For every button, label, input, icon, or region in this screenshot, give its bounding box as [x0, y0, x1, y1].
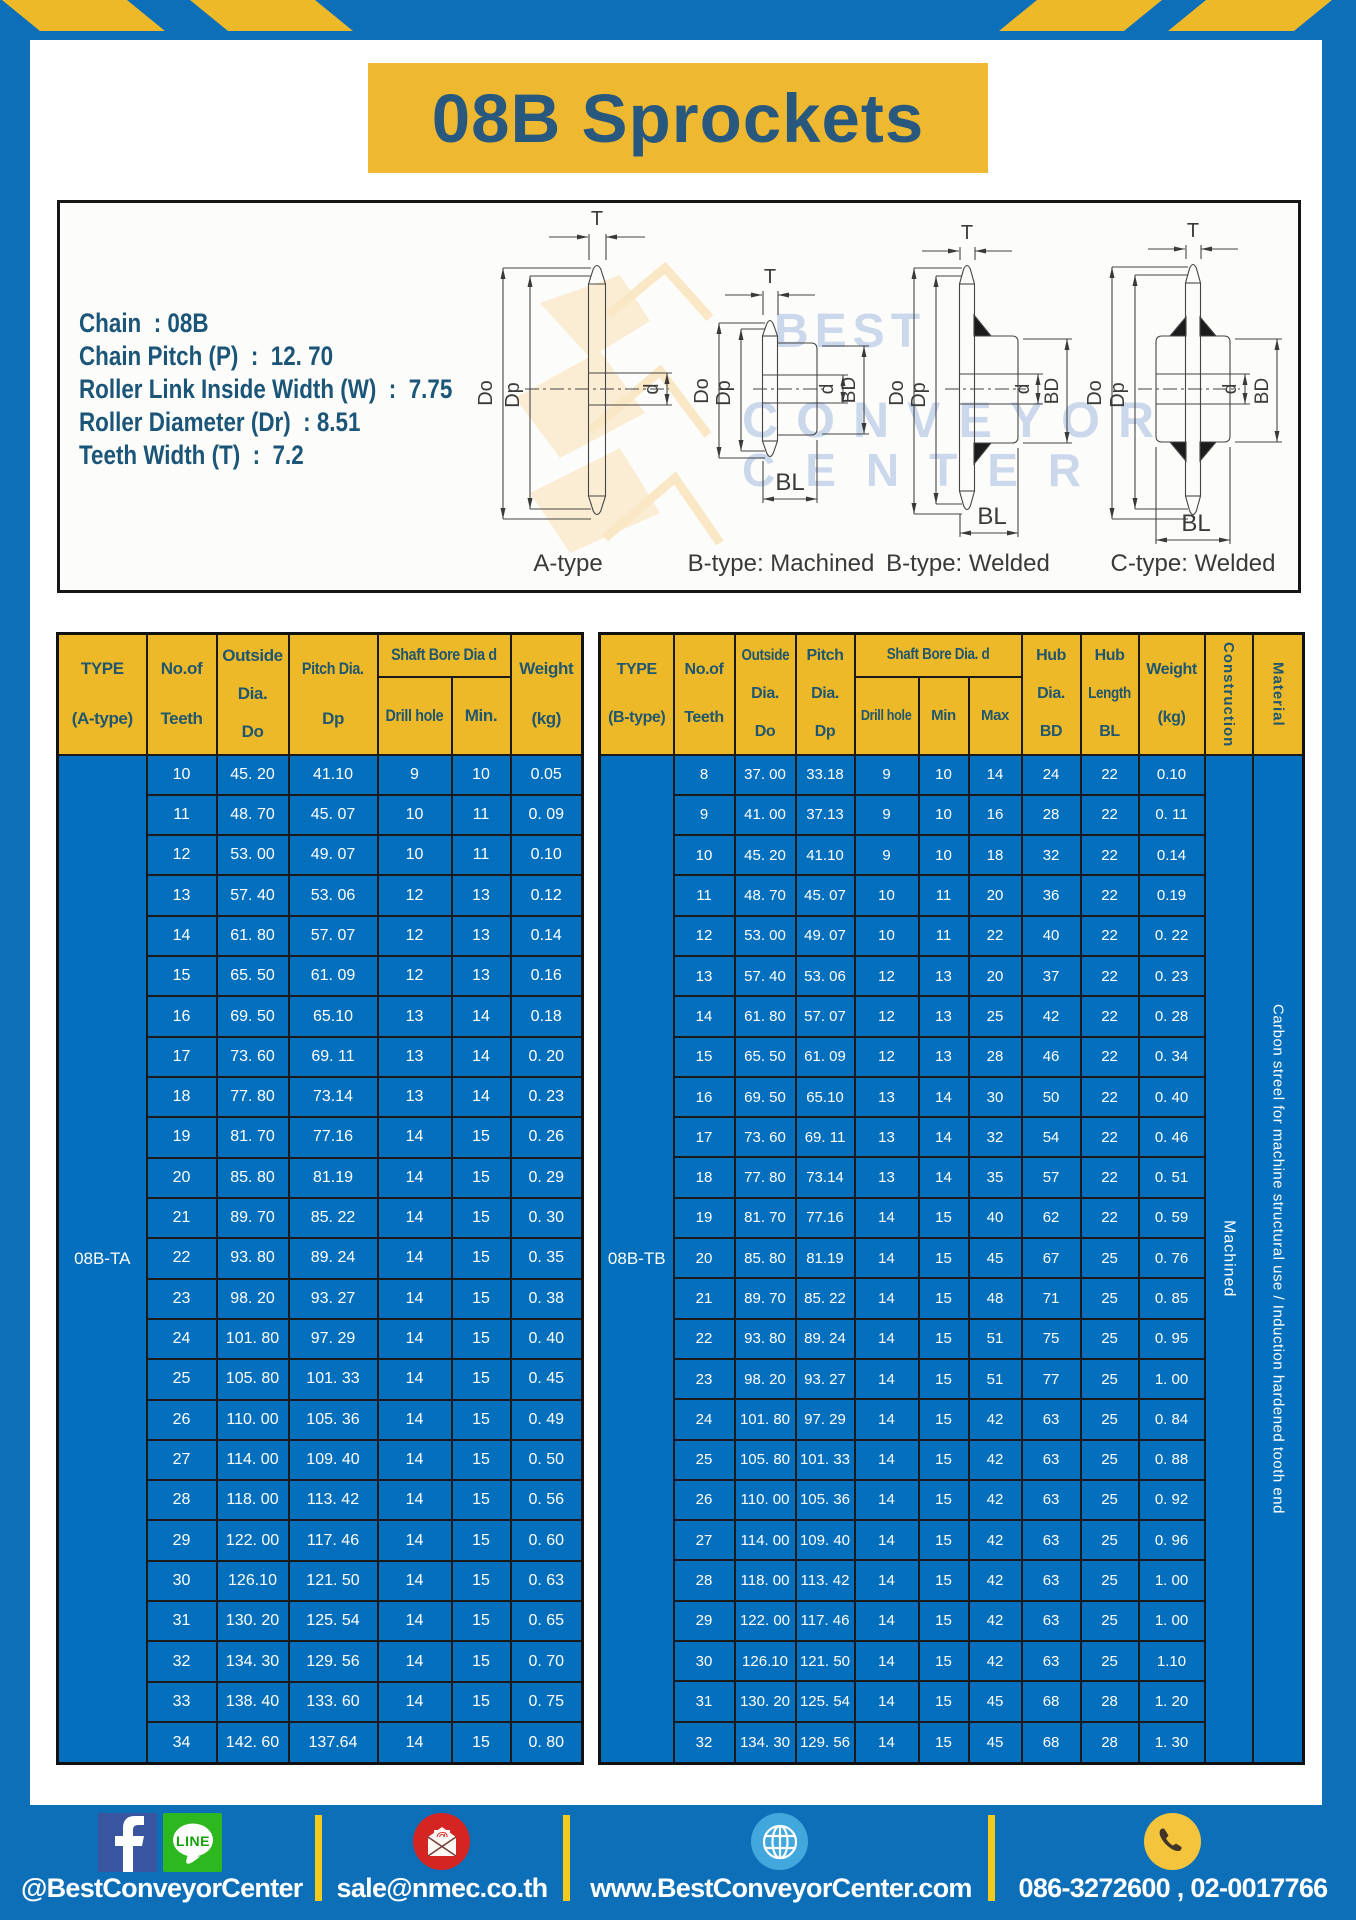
svg-text:T: T — [1187, 220, 1199, 242]
svg-text:Dp: Dp — [502, 382, 524, 408]
svg-text:T: T — [961, 222, 973, 244]
svg-text:B-type: Machined: B-type: Machined — [688, 550, 875, 577]
svg-text:Dp: Dp — [1107, 382, 1129, 408]
svg-text:BD: BD — [1252, 378, 1273, 404]
svg-text:BL: BL — [1181, 510, 1210, 537]
svg-text:BD: BD — [1042, 378, 1063, 404]
svg-text:d: d — [641, 383, 663, 394]
svg-text:C-type: Welded: C-type: Welded — [1111, 550, 1276, 577]
svg-text:T: T — [591, 208, 603, 230]
svg-text:Do: Do — [691, 378, 713, 404]
svg-text:BL: BL — [977, 503, 1006, 530]
svg-text:Do: Do — [475, 380, 497, 406]
svg-text:A-type: A-type — [533, 550, 602, 577]
svg-text:T: T — [764, 266, 776, 288]
svg-text:Do: Do — [1084, 380, 1106, 406]
svg-text:LINE: LINE — [176, 1833, 210, 1849]
svg-text:d: d — [1013, 384, 1034, 395]
svg-text:BL: BL — [775, 469, 804, 496]
svg-text:BD: BD — [839, 377, 860, 403]
svg-text:Dp: Dp — [713, 380, 735, 406]
svg-text:Do: Do — [886, 380, 908, 406]
svg-text:d: d — [817, 384, 838, 395]
svg-text:d: d — [1220, 384, 1241, 395]
svg-text:Dp: Dp — [908, 382, 930, 408]
svg-text:B-type: Welded: B-type: Welded — [886, 550, 1050, 577]
